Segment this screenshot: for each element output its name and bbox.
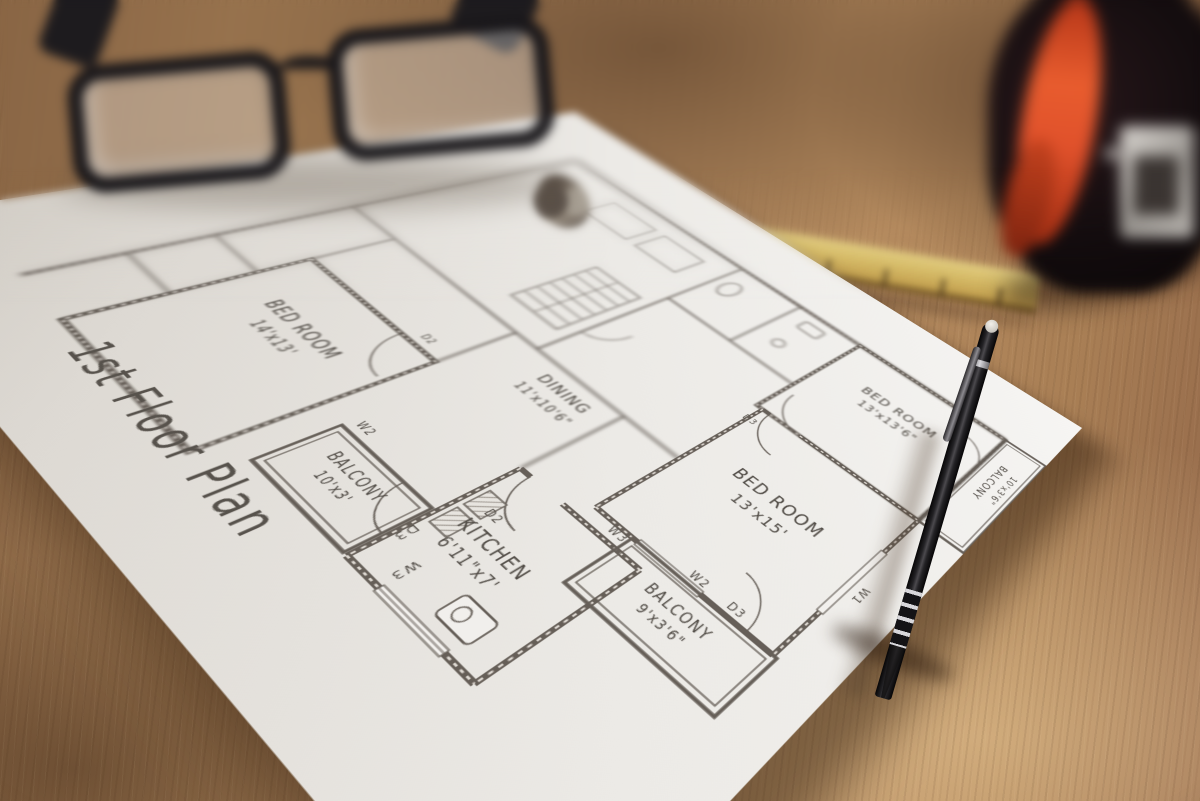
photo-floor-plan-scene: D2 DINING 11'x10'6" BED ROOM 13'x13'6" B… xyxy=(0,0,1200,801)
vignette xyxy=(0,0,1200,801)
